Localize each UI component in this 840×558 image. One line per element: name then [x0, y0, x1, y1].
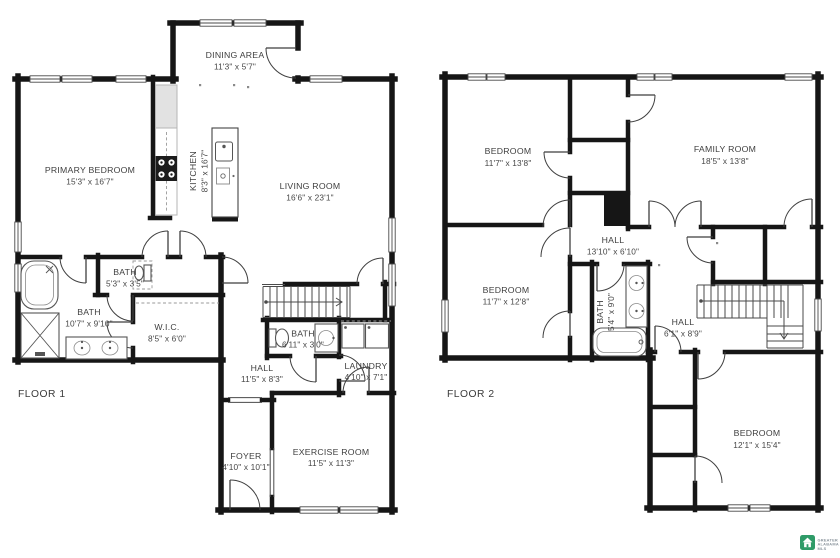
floor1-walls	[15, 23, 395, 512]
mls-logo: GREATER ALABAMA MLS	[800, 535, 839, 551]
dining-vent-marks	[199, 84, 249, 88]
room-label-hall-lower: HALL	[672, 317, 695, 327]
room-dims-family: 18'5" x 13'8"	[701, 156, 748, 166]
room-dims-wic: 8'5" x 6'0"	[148, 334, 186, 344]
room-label-bath-hall: BATH	[291, 329, 315, 339]
stove-icon	[156, 156, 178, 181]
floor1-labels: DINING AREA 11'3" x 5'7" PRIMARY BEDROOM…	[18, 50, 388, 472]
room-dims-bath-small: 5'3" x 3'5"	[106, 279, 144, 289]
room-label-bath2: BATH	[595, 300, 605, 324]
room-label-exercise: EXERCISE ROOM	[293, 447, 370, 457]
floor2-doors	[541, 95, 812, 483]
room-dims-foyer: 4'10" x 10'1"	[222, 462, 269, 472]
room-label-living: LIVING ROOM	[280, 181, 341, 191]
room-dims-bedroom-w: 11'7" x 12'8"	[483, 297, 530, 307]
floor1-windows	[15, 20, 395, 513]
room-dims-primary-bedroom: 15'3" x 16'7"	[66, 177, 113, 187]
room-label-foyer: FOYER	[230, 451, 261, 461]
room-dims-living: 16'6" x 23'1"	[286, 193, 333, 203]
floor1-plan: DINING AREA 11'3" x 5'7" PRIMARY BEDROOM…	[15, 20, 395, 513]
floor2-stairs-icon	[697, 285, 803, 348]
double-vanity-icon	[626, 266, 647, 327]
room-label-hall: HALL	[251, 363, 274, 373]
room-dims-bath-primary: 10'7" x 9'10"	[65, 319, 112, 329]
room-dims-bath2: 5'4" x 9'0"	[606, 293, 616, 331]
room-dims-hall: 11'5" x 8'3"	[241, 374, 283, 384]
room-label-bedroom-nw: BEDROOM	[485, 146, 532, 156]
room-label-bedroom-w: BEDROOM	[483, 285, 530, 295]
room-dims-bedroom-se: 12'1" x 15'4"	[733, 440, 780, 450]
room-dims-dining: 11'3" x 5'7"	[214, 62, 256, 72]
room-label-dining: DINING AREA	[206, 50, 265, 60]
bathtub-icon	[21, 261, 58, 309]
floor1-stairs-icon	[263, 287, 350, 318]
room-label-bath-small: BATH	[113, 267, 137, 277]
room-dims-bedroom-nw: 11'7" x 13'8"	[485, 158, 532, 168]
room-label-wic: W.I.C.	[154, 322, 179, 332]
room-label-bedroom-se: BEDROOM	[734, 428, 781, 438]
double-vanity-icon	[66, 337, 127, 359]
shower-icon	[21, 313, 59, 358]
washer-dryer-icon	[341, 321, 391, 348]
logo-text-line3: MLS	[818, 546, 827, 551]
room-dims-kitchen: 8'3" x 16'7"	[200, 150, 210, 193]
room-dims-hall-upper: 13'10" x 6'10"	[587, 247, 639, 257]
room-dims-laundry: 4'10" x 7'1"	[345, 372, 388, 382]
floorplan-page: DINING AREA 11'3" x 5'7" PRIMARY BEDROOM…	[0, 0, 840, 558]
floor1-title: FLOOR 1	[18, 389, 66, 400]
island-icon	[212, 128, 238, 217]
room-label-bath-primary: BATH	[77, 307, 101, 317]
fridge-icon	[156, 85, 178, 128]
floor1-kitchen-fixtures	[156, 85, 239, 217]
floor2-title: FLOOR 2	[447, 389, 495, 400]
floorplan-svg: DINING AREA 11'3" x 5'7" PRIMARY BEDROOM…	[0, 0, 840, 558]
room-dims-bath-hall: 6'11" x 3'0"	[282, 340, 324, 350]
room-label-laundry: LAUNDRY	[344, 361, 387, 371]
room-label-hall-upper: HALL	[602, 235, 625, 245]
room-label-primary-bedroom: PRIMARY BEDROOM	[45, 165, 135, 175]
room-label-kitchen: KITCHEN	[188, 151, 198, 191]
room-dims-exercise: 11'5" x 11'3"	[308, 458, 354, 468]
room-dims-hall-lower: 6'1" x 8'9"	[664, 329, 702, 339]
floor2-plan: BEDROOM 11'7" x 13'8" FAMILY ROOM 18'5" …	[442, 74, 821, 511]
room-label-family: FAMILY ROOM	[694, 144, 756, 154]
chimney	[604, 193, 628, 226]
floor2-labels: BEDROOM 11'7" x 13'8" FAMILY ROOM 18'5" …	[447, 144, 781, 450]
bathtub-icon	[593, 328, 646, 356]
